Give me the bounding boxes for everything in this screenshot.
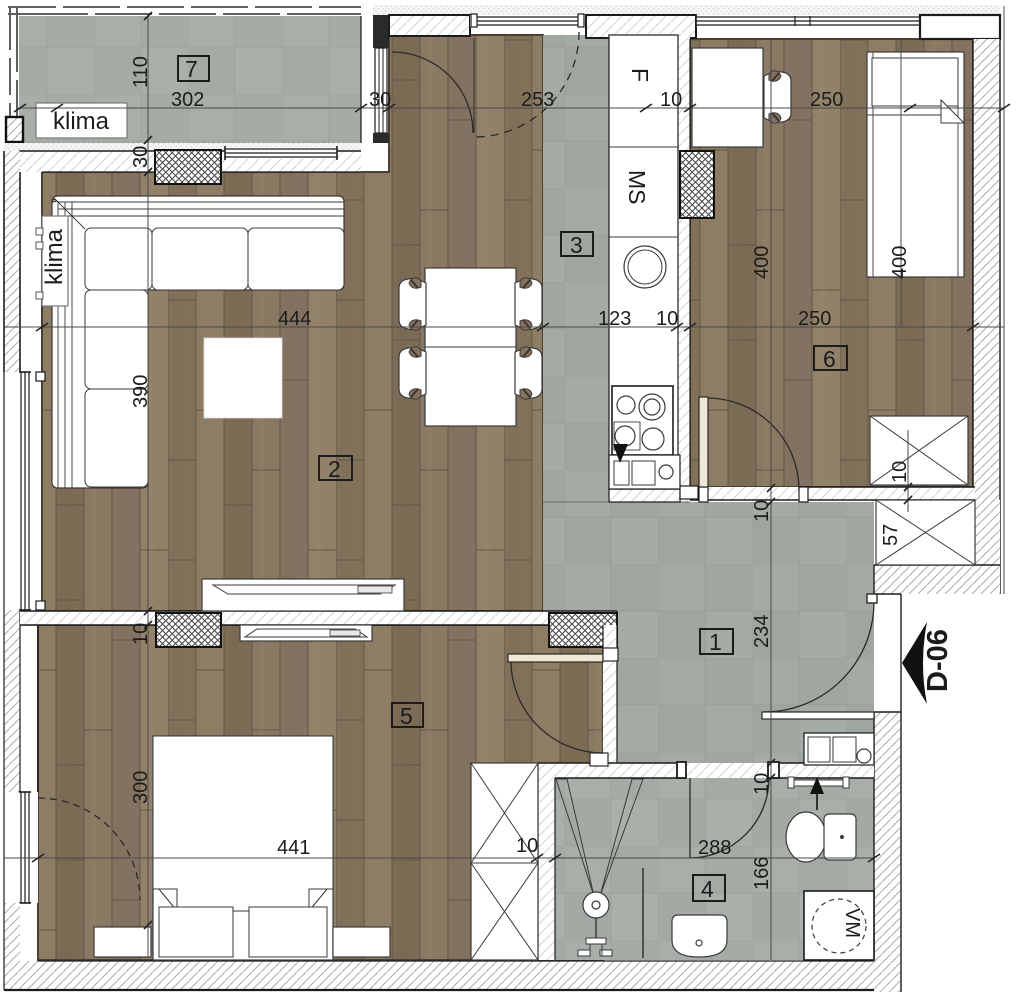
svg-text:5: 5: [400, 703, 413, 729]
svg-text:10: 10: [516, 835, 538, 857]
svg-text:10: 10: [130, 623, 152, 645]
svg-text:10: 10: [889, 461, 911, 483]
svg-text:D-06: D-06: [922, 629, 954, 692]
svg-text:30: 30: [369, 89, 391, 111]
svg-text:300: 300: [130, 771, 152, 804]
svg-text:4: 4: [701, 876, 714, 902]
svg-text:400: 400: [751, 246, 773, 279]
svg-text:166: 166: [751, 857, 773, 890]
svg-text:MS: MS: [624, 170, 650, 205]
svg-text:F: F: [627, 68, 653, 82]
svg-text:6: 6: [823, 346, 836, 372]
svg-text:klima: klima: [41, 228, 68, 285]
svg-text:57: 57: [880, 524, 902, 546]
svg-text:2: 2: [328, 456, 341, 482]
svg-text:250: 250: [810, 89, 843, 111]
svg-text:10: 10: [751, 773, 773, 795]
svg-text:441: 441: [277, 837, 310, 859]
svg-text:10: 10: [660, 89, 682, 111]
svg-text:302: 302: [171, 89, 204, 111]
svg-text:10: 10: [751, 500, 773, 522]
svg-text:390: 390: [130, 375, 152, 408]
svg-text:VM: VM: [841, 908, 863, 938]
svg-text:klima: klima: [53, 108, 110, 135]
svg-text:444: 444: [278, 308, 311, 330]
svg-text:288: 288: [698, 837, 731, 859]
svg-text:1: 1: [709, 629, 722, 655]
svg-text:123: 123: [598, 308, 631, 330]
svg-text:7: 7: [185, 56, 198, 82]
svg-text:110: 110: [130, 56, 152, 88]
svg-text:253: 253: [521, 89, 554, 111]
svg-text:234: 234: [751, 615, 773, 648]
svg-text:3: 3: [570, 232, 583, 258]
svg-text:10: 10: [656, 308, 678, 330]
svg-text:250: 250: [798, 308, 831, 330]
svg-text:30: 30: [130, 146, 152, 168]
svg-text:400: 400: [889, 246, 911, 279]
